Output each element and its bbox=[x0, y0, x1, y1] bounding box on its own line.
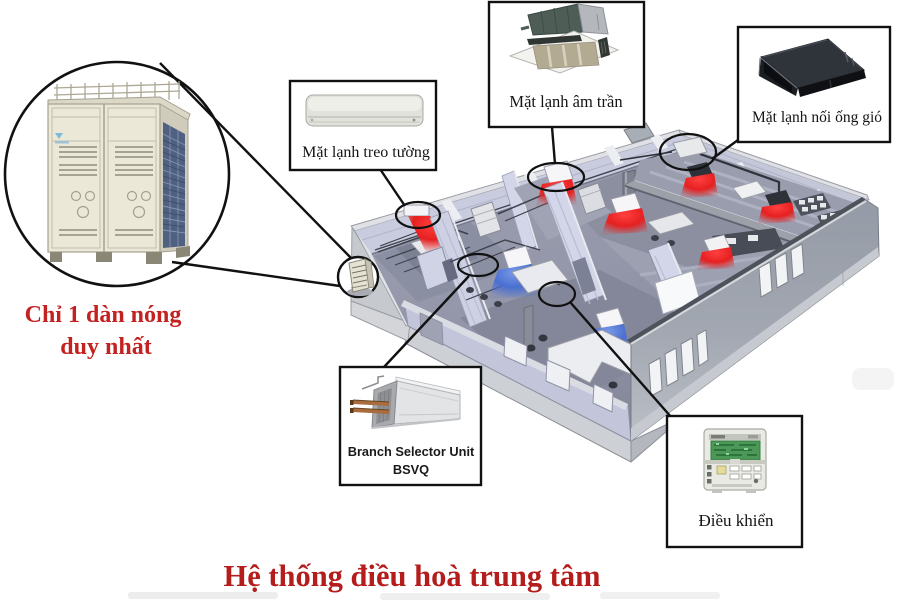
svg-text:duy nhất: duy nhất bbox=[60, 334, 151, 360]
svg-text:Chỉ 1 dàn nóng: Chỉ 1 dàn nóng bbox=[25, 302, 182, 328]
svg-text:Hệ thống điều hoà trung tâm: Hệ thống điều hoà trung tâm bbox=[223, 559, 600, 593]
svg-text:Mặt lạnh nối ống gió: Mặt lạnh nối ống gió bbox=[752, 109, 882, 126]
svg-text:Mặt lạnh treo tường: Mặt lạnh treo tường bbox=[302, 144, 430, 161]
svg-text:Điều khiển: Điều khiển bbox=[698, 511, 774, 530]
svg-text:Mặt lạnh âm trần: Mặt lạnh âm trần bbox=[509, 92, 622, 111]
svg-text:BSVQ: BSVQ bbox=[393, 462, 429, 477]
svg-text:Branch Selector Unit: Branch Selector Unit bbox=[348, 444, 475, 459]
